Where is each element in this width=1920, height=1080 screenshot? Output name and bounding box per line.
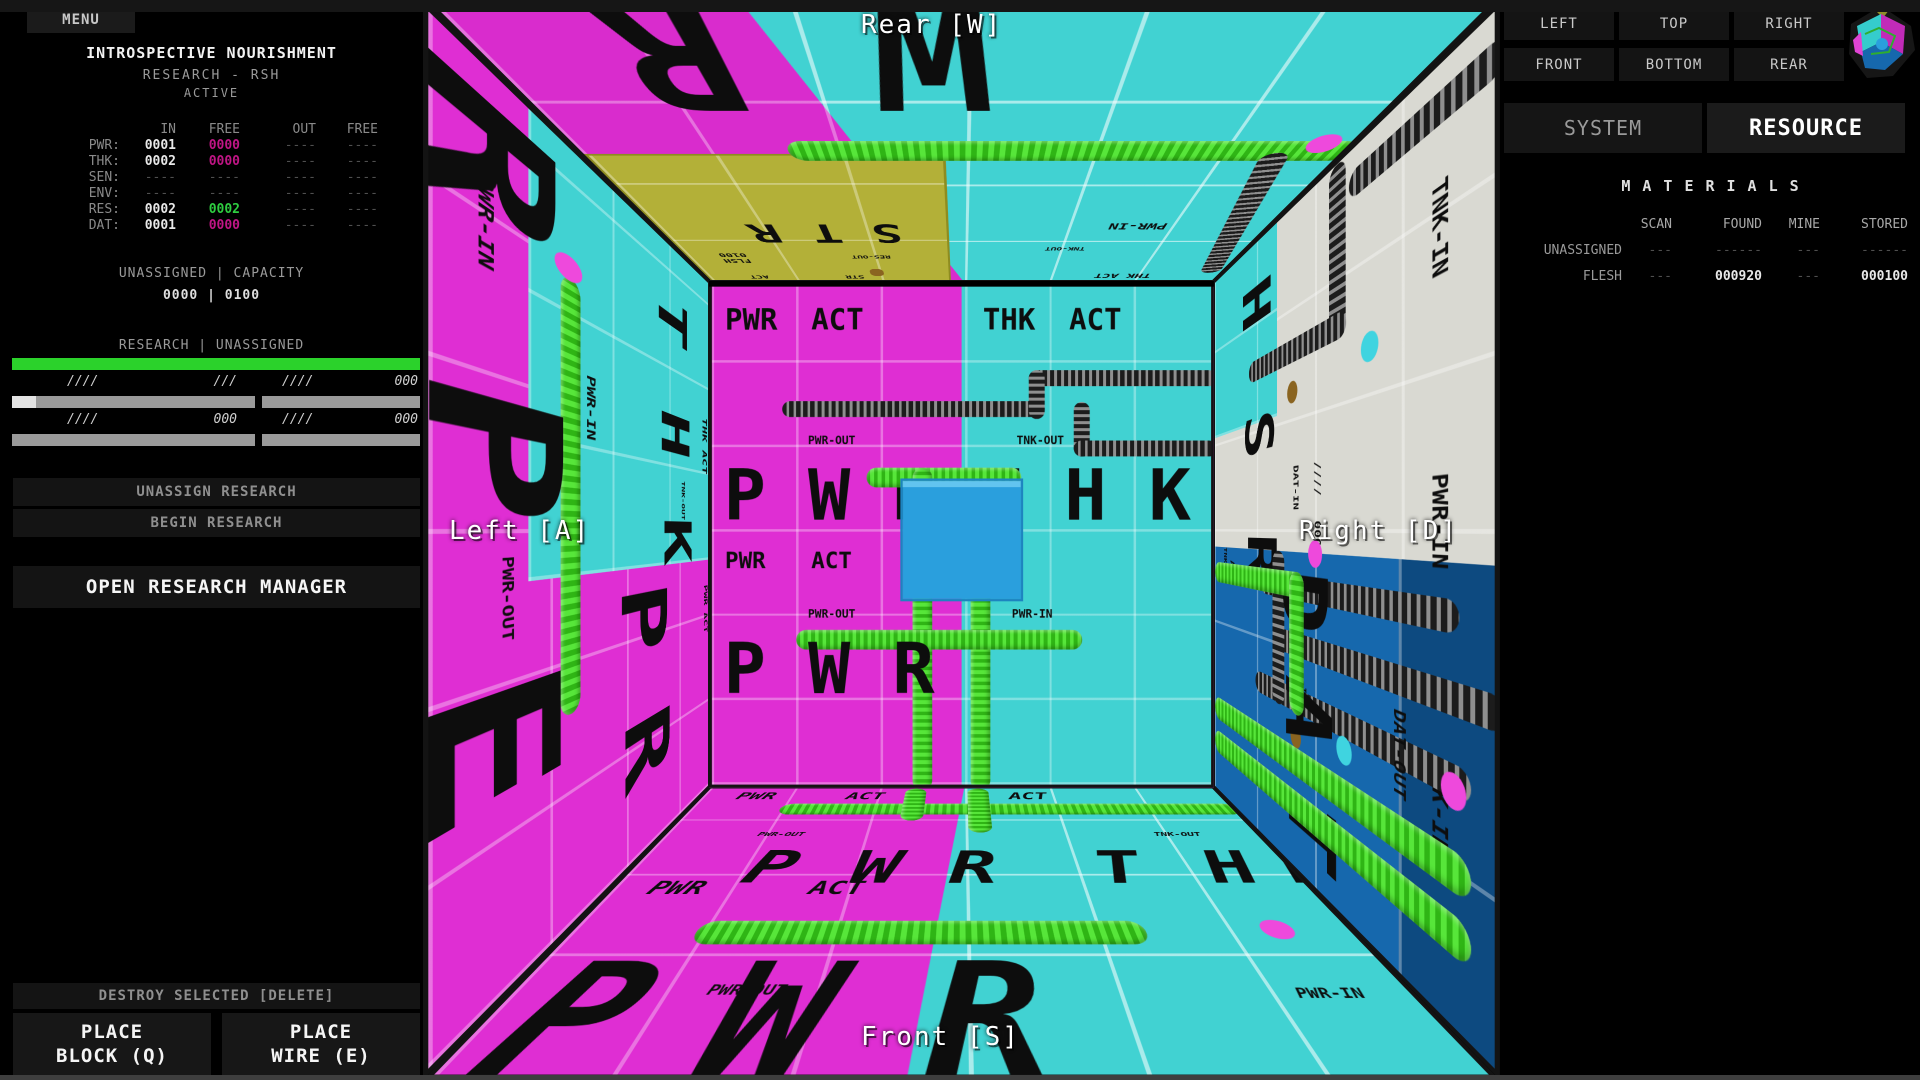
- io-row-label: SEN:: [36, 170, 120, 186]
- destroy-selected-button[interactable]: DESTROY SELECTED [DELETE]: [13, 983, 420, 1009]
- wall-label: DAT-OUT: [1390, 706, 1408, 804]
- io-col-in: IN: [120, 122, 176, 138]
- pipe: [1255, 669, 1471, 808]
- big-letter: R: [921, 938, 1065, 1080]
- wall-label: THK: [983, 303, 1035, 337]
- meter-bar: [12, 434, 255, 446]
- wall-label: 0100: [716, 252, 748, 258]
- big-letter: P: [423, 337, 588, 526]
- wall-label: PWR-OUT: [756, 831, 807, 838]
- wall-label: ACT: [811, 547, 852, 573]
- wall-label: PWR-OUT: [704, 983, 789, 999]
- capacity-value: 0000 | 0100: [0, 288, 423, 303]
- green-wire: [1215, 695, 1471, 906]
- big-letter: P: [604, 578, 677, 671]
- meter-bar: [262, 434, 420, 446]
- wall-label: PWR-IN: [1291, 986, 1371, 1002]
- big-letter: T: [980, 455, 1022, 537]
- research-header: RESEARCH | UNASSIGNED: [0, 338, 423, 353]
- big-letter: STR: [707, 218, 906, 247]
- pipe: [1272, 550, 1284, 707]
- io-value: ----: [316, 186, 378, 202]
- big-letter: P: [731, 842, 809, 895]
- mat-col-scan: SCAN: [1622, 212, 1672, 238]
- wall-label: PWR: [725, 303, 777, 337]
- research-meter: //// 000: [262, 412, 420, 466]
- io-value: ----: [120, 186, 176, 202]
- big-letter: T: [648, 277, 693, 358]
- wall-label: -IN: [1300, 678, 1308, 702]
- right-panel: LEFT TOP RIGHT FRONT BOTTOM REAR SYSTEM …: [1500, 0, 1920, 1080]
- tab-system[interactable]: SYSTEM: [1504, 103, 1702, 153]
- wall-label: PWR: [733, 791, 780, 802]
- wall-label: TNK-IN: [1427, 751, 1452, 861]
- green-wire: [971, 584, 991, 787]
- material-value: ---: [1622, 264, 1672, 290]
- io-col-free2: FREE: [316, 122, 378, 138]
- io-value: ----: [240, 170, 316, 186]
- big-letter: H: [1187, 842, 1277, 895]
- port-dot: [1287, 379, 1297, 405]
- face-label-left: Left [A]: [449, 516, 590, 546]
- place-block-button[interactable]: PLACE BLOCK (Q): [13, 1013, 211, 1075]
- meter-right-label: 000: [214, 412, 237, 432]
- wall-label: PWR-IN: [473, 163, 498, 275]
- pipe: [1200, 151, 1292, 273]
- wall-label: RES-OUT: [851, 254, 892, 259]
- wall-label: ACT: [1229, 560, 1235, 583]
- green-wire: [796, 630, 1082, 650]
- big-letter: P: [724, 628, 766, 710]
- big-letter: H: [651, 401, 695, 464]
- io-col-out: OUT: [240, 122, 316, 138]
- meter-left-label: ////: [67, 412, 98, 432]
- pipe: [1074, 441, 1214, 457]
- app-root: MENU INTROSPECTIVE NOURISHMENT RESEARCH …: [0, 0, 1920, 1080]
- io-value: ----: [120, 170, 176, 186]
- io-value: ----: [240, 138, 316, 154]
- port-dot: [555, 246, 583, 289]
- io-table: IN FREE OUT FREE PWR: 0001 0000 ---- ---…: [36, 122, 386, 234]
- wall-label: TNK-IN: [1427, 171, 1452, 283]
- io-col-free: FREE: [176, 122, 240, 138]
- big-letter: W: [808, 455, 850, 537]
- green-wire: [1215, 562, 1304, 600]
- unassign-research-button[interactable]: UNASSIGN RESEARCH: [13, 478, 420, 506]
- mat-col-found: FOUND: [1672, 212, 1762, 238]
- port-dot: [1361, 327, 1379, 365]
- big-letter: W: [660, 938, 854, 1080]
- big-letter: H: [1064, 455, 1106, 537]
- big-letter: K: [1149, 455, 1191, 537]
- pipe: [1329, 156, 1346, 343]
- green-wire: [967, 789, 992, 833]
- wall-label: TNK-OUT: [1152, 831, 1203, 838]
- pipe: [1249, 308, 1346, 384]
- io-value: 0001: [120, 218, 176, 234]
- wall-label: ACT: [748, 274, 771, 279]
- place-block-line2: BLOCK (Q): [56, 1045, 168, 1067]
- pipe: [1029, 370, 1214, 386]
- big-letter: R: [948, 842, 1000, 895]
- wall-label: PWR-IN: [1012, 607, 1053, 620]
- view-rear-button[interactable]: REAR: [1734, 48, 1844, 81]
- meter-bar: [262, 396, 420, 408]
- wall-label: STR: [844, 274, 865, 279]
- window-bottom-strip: [0, 1075, 1920, 1080]
- material-value: 000100: [1820, 264, 1908, 290]
- wall-label: TNK-IN: [1223, 547, 1228, 579]
- mat-col-stored: STORED: [1820, 212, 1908, 238]
- capacity-label: UNASSIGNED | CAPACITY: [0, 266, 423, 281]
- wall-label: PWR-OUT: [499, 555, 517, 643]
- big-letter: E: [423, 645, 586, 905]
- green-wire: [1215, 728, 1471, 972]
- pipe: [1279, 627, 1500, 736]
- research-progress-bar: [12, 358, 420, 370]
- big-letter: S: [1237, 402, 1282, 463]
- view-front-button[interactable]: FRONT: [1504, 48, 1614, 81]
- io-row-label: THK:: [36, 154, 120, 170]
- big-letter: R: [608, 692, 680, 813]
- structure-subtitle: RESEARCH - RSH: [0, 68, 423, 83]
- big-letter: K: [1258, 842, 1360, 895]
- wall-label: TNK-OUT: [681, 481, 686, 521]
- port-dot: [1300, 134, 1350, 153]
- structure-cube-icon: [1845, 4, 1917, 80]
- tab-resource[interactable]: RESOURCE: [1707, 103, 1905, 153]
- io-row-label: PWR:: [36, 138, 120, 154]
- wall-label: DAT-IN: [1292, 464, 1300, 510]
- big-letter: T: [1085, 842, 1158, 895]
- material-value: ---: [1622, 238, 1672, 264]
- io-value: 0002: [176, 202, 240, 218]
- io-value: ----: [240, 218, 316, 234]
- meter-left-label: ////: [282, 374, 313, 394]
- material-value: ------: [1672, 238, 1762, 264]
- face-label-front: Front [S]: [861, 1022, 1020, 1052]
- green-wire: [784, 141, 1363, 161]
- material-row-label: UNASSIGNED: [1502, 238, 1622, 264]
- io-value: ----: [316, 202, 378, 218]
- green-wire: [688, 921, 1152, 945]
- place-wire-button[interactable]: PLACE WIRE (E): [222, 1013, 420, 1075]
- wall-label: FLSH: [721, 258, 753, 264]
- meter-left-label: ////: [67, 374, 98, 394]
- io-value: ----: [316, 154, 378, 170]
- io-value: ----: [176, 186, 240, 202]
- meter-right-label: 000: [395, 412, 418, 432]
- port-dot: [1441, 767, 1466, 817]
- green-wire: [899, 789, 927, 821]
- big-letter: D: [1270, 565, 1342, 646]
- place-block-line1: PLACE: [81, 1021, 143, 1043]
- pipe: [782, 401, 1045, 417]
- meter-left-label: ////: [282, 412, 313, 432]
- green-wire: [867, 468, 1022, 488]
- wall-label: ACT: [1069, 303, 1121, 337]
- green-wire: [561, 272, 581, 719]
- io-value: 0000: [176, 154, 240, 170]
- port-dot: [869, 269, 885, 276]
- io-value: 0002: [120, 202, 176, 218]
- io-row-label: DAT:: [36, 218, 120, 234]
- big-letter: R: [892, 455, 934, 537]
- mat-col-mine: MINE: [1762, 212, 1820, 238]
- io-value: ----: [316, 138, 378, 154]
- wall-label: ACT: [1008, 791, 1049, 802]
- green-wire: [913, 468, 933, 788]
- wall-label: PWR-IN: [584, 373, 597, 442]
- wall-label: PWR ACT: [703, 584, 709, 634]
- material-value: 000920: [1672, 264, 1762, 290]
- io-value: 0001: [120, 138, 176, 154]
- io-value: ----: [176, 170, 240, 186]
- viewport-3d[interactable]: PWR ACT THK ACT PWR-OUT TNK-OUT P W R T …: [423, 0, 1500, 1080]
- wall-label: PWR: [641, 877, 712, 898]
- pipe: [1029, 370, 1045, 419]
- wall-label: PWR-OUT: [808, 434, 855, 447]
- meter-right-label: ///: [214, 374, 237, 394]
- green-wire: [776, 804, 1243, 815]
- wall-label: ////: [1312, 460, 1322, 496]
- face-label-right: Right [D]: [1299, 516, 1458, 546]
- pipe: [1349, 31, 1500, 202]
- big-letter: T: [1276, 770, 1351, 902]
- io-value: 0002: [120, 154, 176, 170]
- place-wire-line1: PLACE: [290, 1021, 352, 1043]
- big-letter: R: [892, 628, 934, 710]
- material-value: ---: [1762, 238, 1820, 264]
- io-value: ----: [316, 218, 378, 234]
- wall-label: ACT: [806, 877, 867, 898]
- open-research-manager-button[interactable]: OPEN RESEARCH MANAGER: [13, 566, 420, 608]
- structure-title: INTROSPECTIVE NOURISHMENT: [0, 44, 423, 62]
- materials-table: SCAN FOUND MINE STORED UNASSIGNED --- --…: [1502, 212, 1910, 290]
- wall-label: ACT: [844, 791, 886, 802]
- pipe: [1074, 402, 1090, 456]
- io-value: 0000: [176, 218, 240, 234]
- material-value: ------: [1820, 238, 1908, 264]
- view-bottom-button[interactable]: BOTTOM: [1619, 48, 1729, 81]
- big-letter: P: [423, 938, 687, 1080]
- big-letter: R: [1240, 533, 1285, 584]
- big-letter: W: [844, 842, 905, 895]
- material-row-label: FLESH: [1502, 264, 1622, 290]
- wall-label: THK ACT: [1093, 272, 1154, 279]
- port-dot: [1336, 732, 1351, 769]
- io-value: ----: [316, 170, 378, 186]
- meter-right-label: 000: [395, 374, 418, 394]
- research-meter: //// 000: [12, 412, 255, 466]
- rear-wall: PWR ACT THK ACT PWR-OUT TNK-OUT P W R T …: [709, 281, 1214, 787]
- ceiling: STR 0100 FLSH RES-OUT ACT STR PWR-IN TNK…: [423, 0, 1500, 281]
- structure-status: ACTIVE: [0, 86, 423, 100]
- io-value: ----: [240, 202, 316, 218]
- wall-label: PWR-OUT: [808, 607, 855, 620]
- str-block: STR 0100 FLSH RES-OUT ACT STR: [584, 154, 951, 281]
- window-top-strip: [0, 0, 1920, 12]
- begin-research-button[interactable]: BEGIN RESEARCH: [13, 509, 420, 537]
- meter-bar: [12, 396, 255, 408]
- io-value: 0000: [176, 138, 240, 154]
- materials-title: MATERIALS: [1500, 177, 1920, 195]
- big-letter: P: [724, 455, 766, 537]
- big-letter: H: [1235, 262, 1279, 342]
- face-label-rear: Rear [W]: [861, 10, 1002, 40]
- big-letter: R: [423, 0, 580, 283]
- big-letter: K: [654, 516, 698, 568]
- pipe: [1261, 572, 1459, 635]
- wall-label: PWR: [725, 547, 766, 573]
- wall-label: PWR-IN: [1107, 221, 1171, 231]
- wall-label: TNK-OUT: [1044, 246, 1086, 251]
- io-row-label: RES:: [36, 202, 120, 218]
- port-dot: [1291, 723, 1301, 752]
- big-letter: W: [808, 628, 850, 710]
- place-wire-line2: WIRE (E): [271, 1045, 371, 1067]
- selected-block[interactable]: [900, 478, 1023, 601]
- wall-label: ACT: [811, 303, 863, 337]
- material-value: ---: [1762, 264, 1820, 290]
- wall-label: THK ACT: [701, 416, 708, 475]
- port-dot: [1254, 920, 1301, 939]
- big-letter: R: [522, 0, 772, 134]
- io-value: ----: [240, 186, 316, 202]
- big-letter: A: [1273, 667, 1347, 773]
- io-row-label: ENV:: [36, 186, 120, 202]
- green-wire: [1289, 571, 1304, 719]
- left-panel: MENU INTROSPECTIVE NOURISHMENT RESEARCH …: [0, 0, 423, 1080]
- io-value: ----: [240, 154, 316, 170]
- wall-label: TNK-OUT: [1017, 434, 1064, 447]
